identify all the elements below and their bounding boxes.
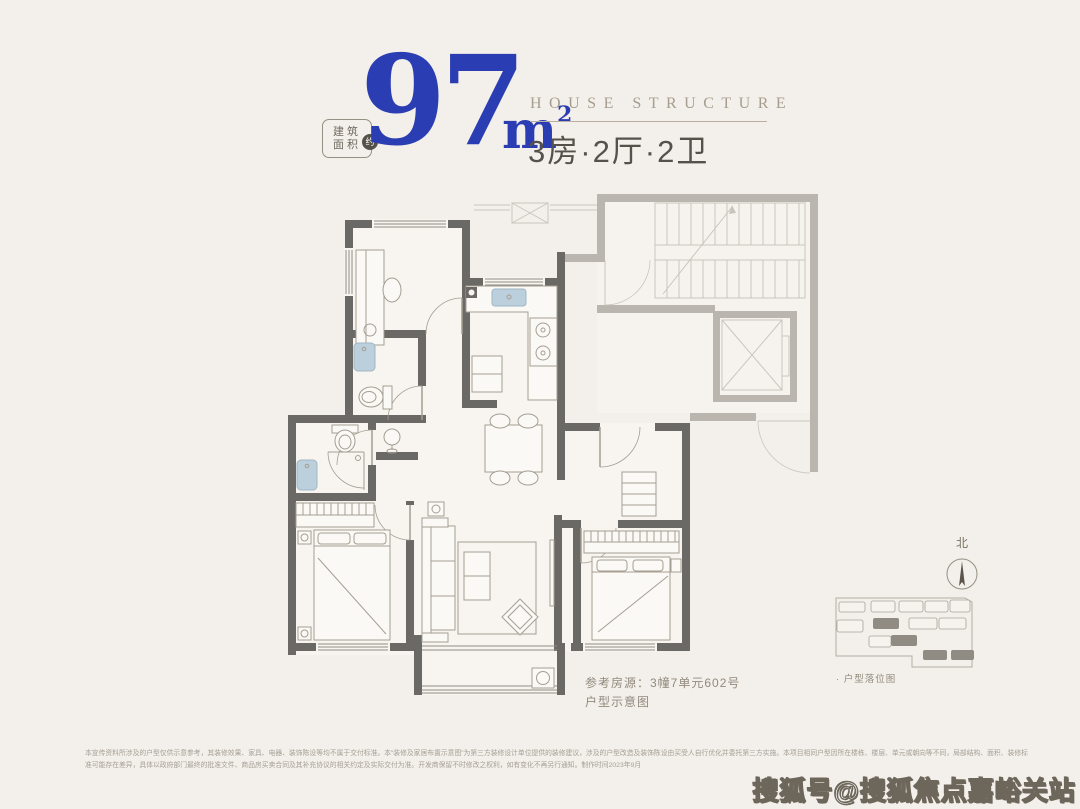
sofa <box>422 523 431 633</box>
side-table <box>428 502 444 516</box>
floor-plan <box>270 190 830 700</box>
air-duct <box>512 203 548 223</box>
nightstand <box>298 531 311 544</box>
dining-table <box>485 425 542 472</box>
nightstand <box>298 627 311 640</box>
master-bedroom <box>584 531 681 640</box>
nightstand <box>671 559 681 572</box>
gas-meter-icon <box>466 287 477 298</box>
page: 建筑 面积 约 97 m2 HOUSE STRUCTURE 3房·2厅·2卫 <box>0 0 1080 809</box>
title-divider <box>530 121 767 122</box>
neighbor-entry-door <box>758 421 810 473</box>
kitchen-sink <box>492 289 526 306</box>
english-title: HOUSE STRUCTURE <box>530 95 790 113</box>
balcony <box>532 668 554 688</box>
site-plan <box>833 588 978 670</box>
reference-line2: 户型示意图 <box>585 693 740 712</box>
site-plan-caption: · 户型落位图 <box>836 671 896 685</box>
area-value: 97 <box>360 40 521 164</box>
reference-line1: 参考房源：3幢7单元602号 <box>585 674 740 693</box>
compass-north-label: 北 <box>956 536 968 550</box>
disclaimer-line2: 准可能存在差异，具体以政府部门最终的批准文件、商品房买卖合同及其补充协议的相关约… <box>85 759 641 769</box>
watermark: 搜狐号@搜狐焦点嘉峪关站 <box>753 771 1076 808</box>
entry-hall <box>622 472 656 516</box>
compass-needle-icon <box>959 561 965 586</box>
tv <box>550 540 554 606</box>
disclaimer-line1: 本宣传资料所涉及的户型仅供示意参考，其装修效果、家具、电器、装饰陈设等均不属于交… <box>85 747 1028 757</box>
reference-note: 参考房源：3幢7单元602号 户型示意图 <box>585 674 740 712</box>
toilet-1 <box>383 386 392 409</box>
room-configuration: 3房·2厅·2卫 <box>528 126 709 171</box>
